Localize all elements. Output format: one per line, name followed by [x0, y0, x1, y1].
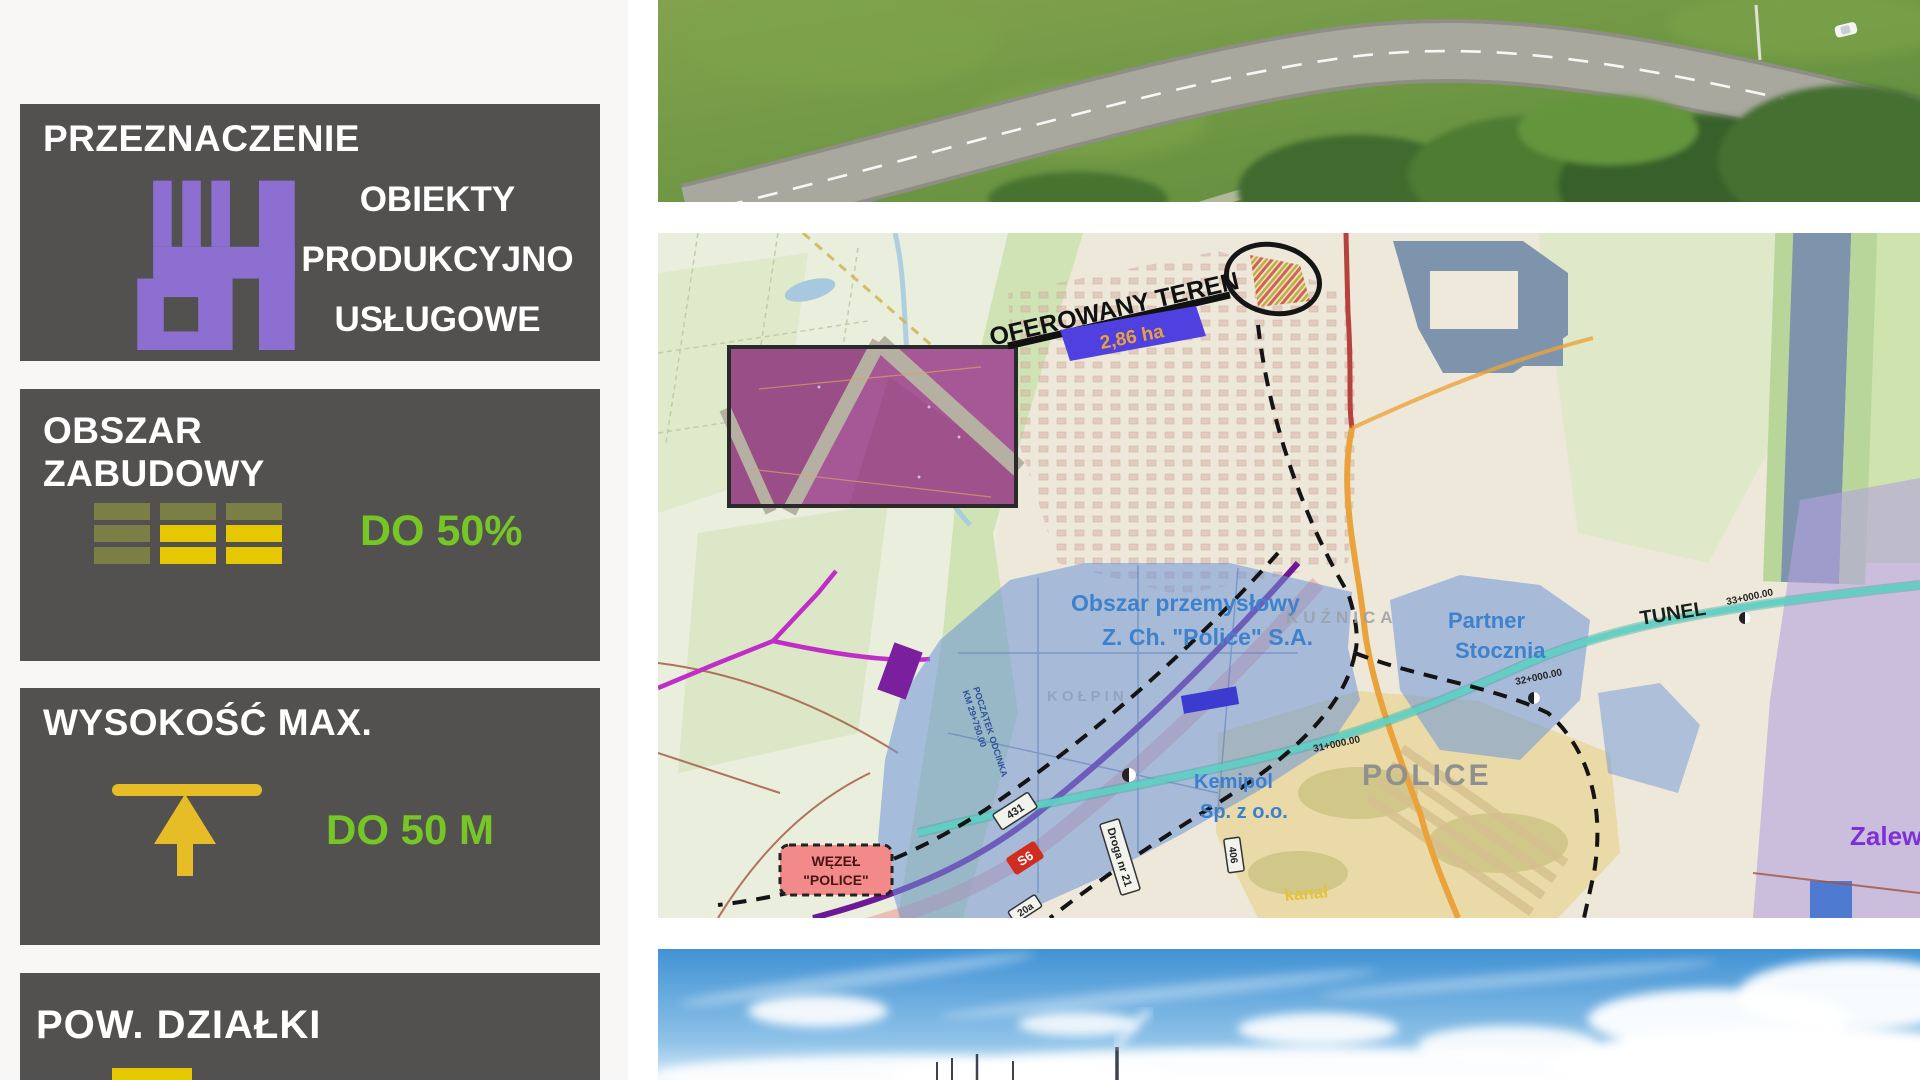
panel-title: OBSZAR ZABUDOWY [43, 409, 265, 495]
info-sidebar: PRZEZNACZENIE OBIEKTY PRODUKCYJNO USŁUGO… [0, 0, 628, 1080]
plot-area-icon [112, 1068, 192, 1080]
height-limit-arrow-icon [110, 782, 280, 882]
kemipol-label: Kemipol [1194, 771, 1273, 793]
svg-text:Stocznia: Stocznia [1455, 638, 1546, 663]
height-value: DO 50 M [326, 806, 494, 854]
panel-title: PRZEZNACZENIE [43, 118, 360, 160]
sky-clouds-photo [658, 949, 1920, 1080]
svg-text:Z. Ch. "Police" S.A.: Z. Ch. "Police" S.A. [1102, 624, 1313, 650]
kolpin-label: KOŁPIN [1047, 688, 1128, 705]
kuznica-label: KUŹNICA [1286, 608, 1398, 627]
panel-title: POW. DZIAŁKI [36, 1003, 321, 1048]
zalew-label: Zalew [1850, 821, 1920, 851]
svg-text:"POLICE": "POLICE" [803, 872, 868, 888]
panel-title: WYSOKOŚĆ MAX. [43, 702, 372, 744]
wezel-police-box: WĘZEŁ "POLICE" [780, 845, 892, 895]
aerial-road-photo [658, 0, 1920, 202]
police-label: POLICE [1362, 759, 1492, 792]
panel-przeznaczenie: PRZEZNACZENIE OBIEKTY PRODUKCYJNO USŁUGO… [20, 104, 600, 361]
panel-value: OBIEKTY PRODUKCYJNO USŁUGOWE [265, 170, 610, 350]
industrial-label: Obszar przemysłowy [1071, 590, 1300, 616]
kanal-label: kanał [1284, 882, 1329, 905]
svg-text:WĘZEŁ: WĘZEŁ [812, 853, 861, 869]
svg-text:Sp. z o.o.: Sp. z o.o. [1200, 801, 1288, 823]
panel-wysokosc-max: WYSOKOŚĆ MAX. DO 50 M [20, 688, 600, 945]
panel-pow-dzialki: POW. DZIAŁKI [20, 973, 600, 1080]
partner-label: Partner [1448, 608, 1525, 633]
location-map: OFEROWANY TEREN 2,86 ha Obszar przemysło… [658, 233, 1920, 918]
coverage-value: DO 50% [360, 507, 523, 556]
offer-slide: PRZEZNACZENIE OBIEKTY PRODUKCYJNO USŁUGO… [0, 0, 1920, 1080]
satellite-inset [725, 342, 1019, 512]
panel-obszar-zabudowy: OBSZAR ZABUDOWY DO 50% [20, 389, 600, 661]
